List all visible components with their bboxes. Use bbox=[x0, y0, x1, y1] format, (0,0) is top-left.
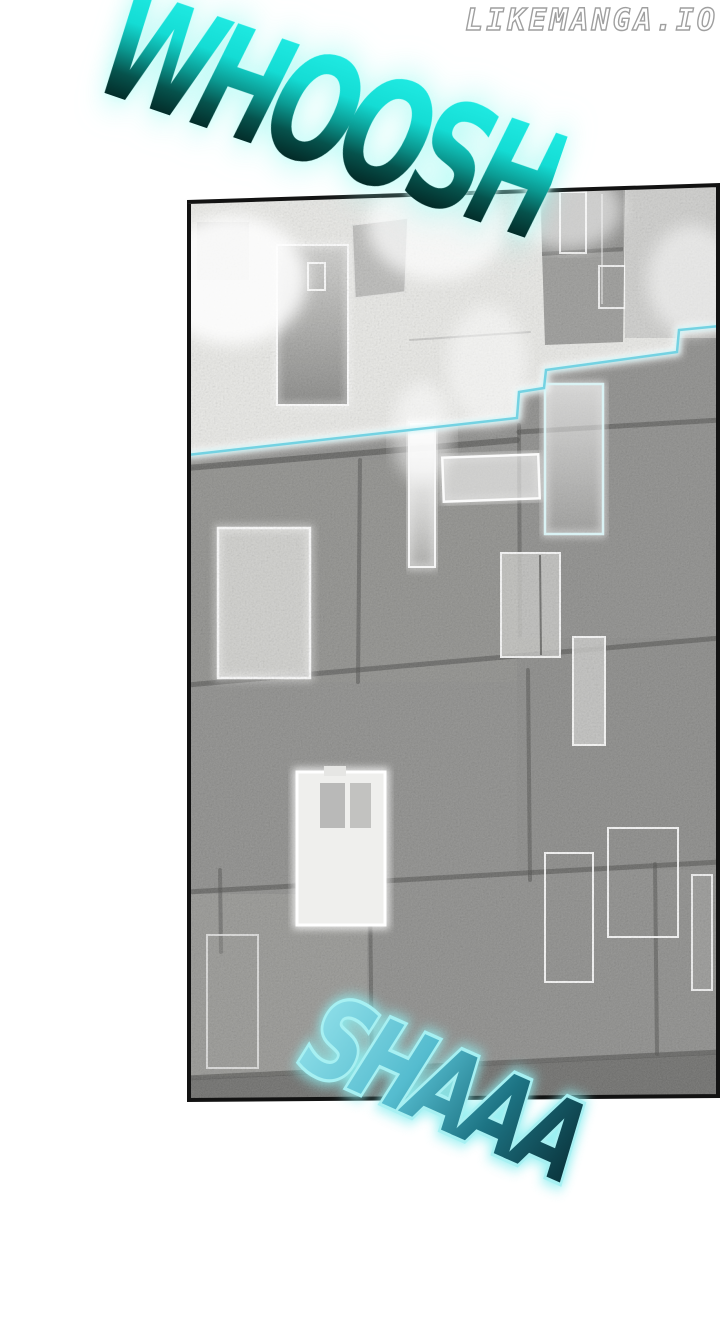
comic-panel bbox=[187, 170, 720, 1102]
stone-wall-art bbox=[187, 170, 720, 1102]
manga-page: LIKEMANGA.IO bbox=[0, 0, 720, 1336]
site-watermark: LIKEMANGA.IO bbox=[465, 3, 718, 38]
